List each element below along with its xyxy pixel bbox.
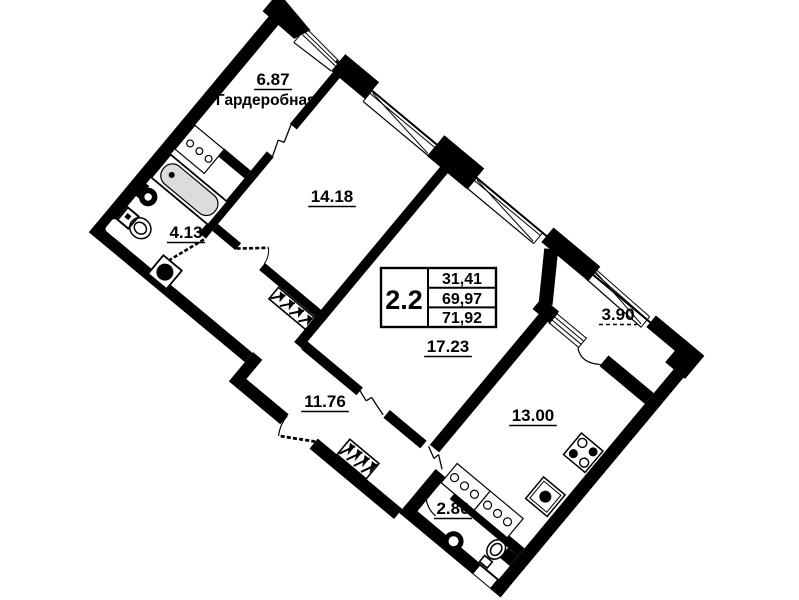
- svg-text:11.76: 11.76: [304, 392, 346, 411]
- svg-text:31,41: 31,41: [442, 271, 482, 288]
- svg-text:69,97: 69,97: [442, 291, 482, 308]
- svg-text:14.18: 14.18: [311, 187, 354, 206]
- svg-text:6.87: 6.87: [256, 70, 289, 89]
- svg-text:Гардеробная: Гардеробная: [216, 92, 316, 109]
- svg-text:2.2: 2.2: [385, 285, 423, 315]
- svg-text:4.13: 4.13: [169, 223, 202, 242]
- svg-text:17.23: 17.23: [427, 337, 470, 356]
- svg-text:71,92: 71,92: [442, 310, 482, 327]
- svg-text:3.90: 3.90: [601, 305, 634, 324]
- svg-text:2.80: 2.80: [436, 499, 469, 518]
- svg-text:13.00: 13.00: [512, 406, 555, 425]
